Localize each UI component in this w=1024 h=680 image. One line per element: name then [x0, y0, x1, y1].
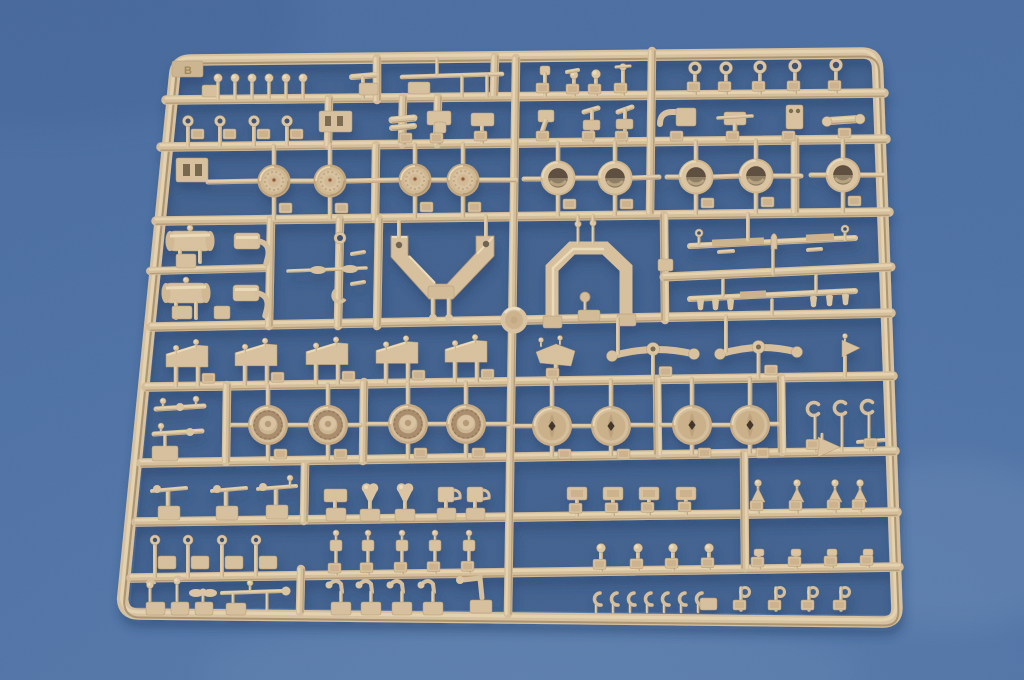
- svg-text:B: B: [184, 65, 192, 77]
